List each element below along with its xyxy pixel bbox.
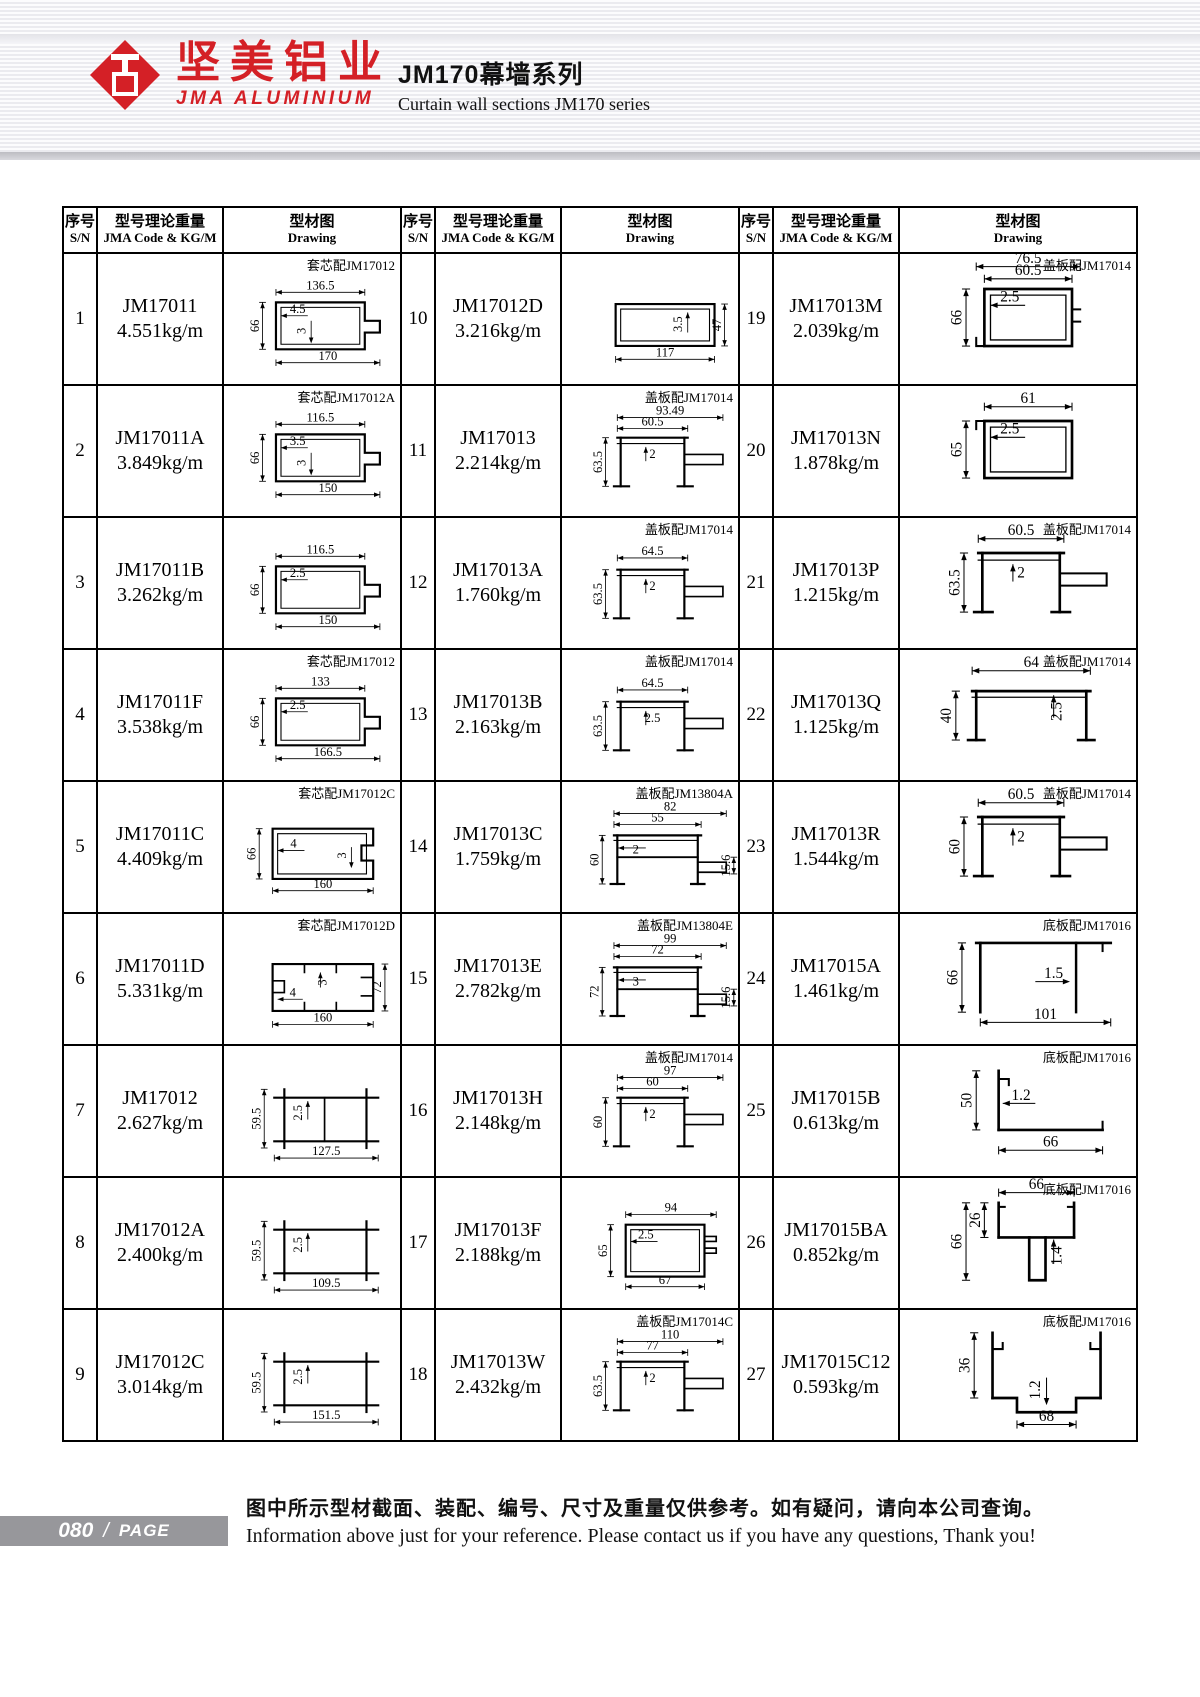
code-weight-cell: JM17013E2.782kg/m xyxy=(435,913,561,1045)
assembly-note: 盖板配JM17014 xyxy=(1043,783,1131,802)
profile-drawing-svg: 136.5664.53170 xyxy=(224,272,400,383)
serial-number: 15 xyxy=(401,913,435,1045)
svg-text:151.5: 151.5 xyxy=(312,1408,340,1422)
svg-text:61: 61 xyxy=(1021,390,1036,407)
series-title-cn: JM170幕墙系列 xyxy=(398,55,650,91)
svg-text:63.5: 63.5 xyxy=(591,583,605,605)
code-weight-cell: JM17013H2.148kg/m xyxy=(435,1045,561,1177)
serial-number: 9 xyxy=(63,1309,97,1441)
serial-number: 8 xyxy=(63,1177,97,1309)
svg-text:66: 66 xyxy=(948,1234,965,1250)
drawing-cell: 套芯配JM17012136.5664.53170 xyxy=(223,253,401,385)
svg-text:94: 94 xyxy=(665,1201,678,1215)
assembly-note: 底板配JM17016 xyxy=(1043,1179,1131,1198)
svg-text:99: 99 xyxy=(664,932,677,946)
drawing-cell: 底板配JM17016501.266 xyxy=(899,1045,1137,1177)
svg-text:60.5: 60.5 xyxy=(1008,786,1035,803)
assembly-note: 盖板配JM17014 xyxy=(645,519,733,538)
jma-logo-icon xyxy=(88,38,162,112)
col-header-drawing: 型材图Drawing xyxy=(223,207,401,253)
svg-text:65: 65 xyxy=(948,442,965,458)
svg-text:60: 60 xyxy=(946,839,963,855)
svg-text:66: 66 xyxy=(248,452,262,465)
code-weight-cell: JM17013B2.163kg/m xyxy=(435,649,561,781)
page-number-badge: 080 / PAGE xyxy=(0,1516,228,1546)
svg-text:3: 3 xyxy=(316,979,330,985)
svg-text:66: 66 xyxy=(248,716,262,729)
profile-drawing-svg: 64.5263.5 xyxy=(562,536,738,647)
drawing-cell: 116.5662.5150 xyxy=(223,517,401,649)
serial-number: 11 xyxy=(401,385,435,517)
page-footer: 080 / PAGE 图中所示型材截面、装配、编号、尺寸及重量仅供参考。如有疑问… xyxy=(0,1484,1200,1604)
profile-weight: 0.613kg/m xyxy=(774,1111,898,1136)
col-header-code: 型号理论重量JMA Code & KG/M xyxy=(435,207,561,253)
svg-text:2: 2 xyxy=(1017,564,1025,581)
profile-code: JM17015C12 xyxy=(774,1350,898,1375)
code-weight-cell: JM17011C4.409kg/m xyxy=(97,781,223,913)
svg-text:2: 2 xyxy=(1017,828,1025,845)
profile-code: JM17011B xyxy=(98,558,222,583)
serial-number: 7 xyxy=(63,1045,97,1177)
profile-code: JM17013E xyxy=(436,954,560,979)
profile-code: JM17013M xyxy=(774,294,898,319)
svg-text:136.5: 136.5 xyxy=(306,278,334,292)
svg-text:66: 66 xyxy=(248,320,262,333)
code-weight-cell: JM17011F3.538kg/m xyxy=(97,649,223,781)
svg-text:170: 170 xyxy=(319,349,338,363)
serial-number: 25 xyxy=(739,1045,773,1177)
code-weight-cell: JM170132.214kg/m xyxy=(435,385,561,517)
profile-code: JM17011A xyxy=(98,426,222,451)
drawing-cell: 59.52.5109.5 xyxy=(223,1177,401,1309)
assembly-note: 套芯配JM17012A xyxy=(297,387,395,406)
profile-weight: 1.461kg/m xyxy=(774,979,898,1004)
serial-number: 12 xyxy=(401,517,435,649)
code-weight-cell: JM17012C3.014kg/m xyxy=(97,1309,223,1441)
svg-text:77: 77 xyxy=(646,1339,659,1353)
svg-text:3: 3 xyxy=(295,460,309,466)
drawing-cell: 盖板配JM1701493.4960.5263.5 xyxy=(561,385,739,517)
profile-weight: 1.878kg/m xyxy=(774,451,898,476)
svg-text:2.5: 2.5 xyxy=(291,1105,305,1121)
svg-text:68: 68 xyxy=(1039,1408,1055,1425)
profile-drawing-svg: 93.4960.5263.5 xyxy=(562,404,738,515)
svg-text:2.5: 2.5 xyxy=(290,698,306,712)
header-divider xyxy=(0,152,1200,160)
profile-code: JM17013B xyxy=(436,690,560,715)
svg-text:3: 3 xyxy=(633,974,639,988)
code-weight-cell: JM17012D3.216kg/m xyxy=(435,253,561,385)
drawing-cell: 底板配JM17016361.268 xyxy=(899,1309,1137,1441)
svg-text:63.5: 63.5 xyxy=(591,451,605,473)
svg-text:64: 64 xyxy=(1024,654,1040,671)
serial-number: 17 xyxy=(401,1177,435,1309)
svg-text:116.5: 116.5 xyxy=(306,542,334,556)
assembly-note: 盖板配JM17014 xyxy=(645,1047,733,1066)
svg-text:160: 160 xyxy=(313,1010,332,1024)
svg-text:109.5: 109.5 xyxy=(312,1276,340,1290)
profile-drawing-svg: 3416072 xyxy=(224,932,400,1043)
code-weight-cell: JM17015C120.593kg/m xyxy=(773,1309,899,1441)
profile-code: JM17012A xyxy=(98,1218,222,1243)
drawing-cell: 612.565 xyxy=(899,385,1137,517)
profile-drawing-svg: 59.52.5109.5 xyxy=(224,1196,400,1307)
svg-text:66: 66 xyxy=(948,310,965,326)
profile-drawing-svg: 59.52.5127.5 xyxy=(224,1064,400,1175)
assembly-note: 底板配JM17016 xyxy=(1043,1311,1131,1330)
profile-weight: 3.849kg/m xyxy=(98,451,222,476)
assembly-note: 盖板配JM13804E xyxy=(637,915,733,934)
drawing-cell: 盖板配JM1701464.5263.5 xyxy=(561,517,739,649)
svg-text:97: 97 xyxy=(664,1064,677,1078)
profile-code: JM17011 xyxy=(98,294,222,319)
drawing-cell: 底板配JM17016661.5101 xyxy=(899,913,1137,1045)
assembly-note: 盖板配JM17014 xyxy=(1043,255,1131,274)
assembly-note: 底板配JM17016 xyxy=(1043,915,1131,934)
svg-text:2.5: 2.5 xyxy=(291,1237,305,1253)
drawing-cell: 底板配JM170166626661.4 xyxy=(899,1177,1137,1309)
svg-text:15.6: 15.6 xyxy=(719,987,733,1009)
svg-text:65: 65 xyxy=(596,1244,610,1257)
svg-text:59.5: 59.5 xyxy=(249,1240,263,1262)
profile-code: JM17011D xyxy=(98,954,222,979)
svg-text:26: 26 xyxy=(967,1212,984,1228)
profile-drawing-svg: 612.565 xyxy=(911,380,1125,515)
brand-block: 坚美铝业 JMA ALUMINIUM xyxy=(88,38,392,112)
svg-text:2.5: 2.5 xyxy=(1000,421,1019,438)
profile-drawing-svg: 94652.567 xyxy=(562,1196,738,1307)
svg-text:60.5: 60.5 xyxy=(1015,262,1042,279)
profile-code: JM17013R xyxy=(774,822,898,847)
profile-code: JM17013N xyxy=(774,426,898,451)
profile-drawing-svg: 64.52.563.5 xyxy=(562,668,738,779)
drawing-cell: 套芯配JM17012D3416072 xyxy=(223,913,401,1045)
svg-text:66: 66 xyxy=(248,584,262,597)
drawing-cell: 盖板配JM1701476.560.52.566 xyxy=(899,253,1137,385)
profile-catalog-table: 序号S/N 型号理论重量JMA Code & KG/M 型材图Drawing 序… xyxy=(62,206,1138,1442)
serial-number: 21 xyxy=(739,517,773,649)
footer-note-en: Information above just for your referenc… xyxy=(246,1525,1200,1548)
serial-number: 2 xyxy=(63,385,97,517)
svg-text:127.5: 127.5 xyxy=(312,1144,340,1158)
svg-text:4: 4 xyxy=(290,985,297,999)
svg-text:3.5: 3.5 xyxy=(671,316,685,332)
profile-code: JM17013H xyxy=(436,1086,560,1111)
svg-text:2: 2 xyxy=(649,1107,655,1121)
profile-weight: 2.163kg/m xyxy=(436,715,560,740)
drawing-cell: 盖板配JM17014C11077263.5 xyxy=(561,1309,739,1441)
svg-text:3: 3 xyxy=(335,852,349,858)
profile-drawing-svg: 116.5662.5150 xyxy=(224,536,400,647)
serial-number: 26 xyxy=(739,1177,773,1309)
svg-text:2: 2 xyxy=(649,447,655,461)
assembly-note: 盖板配JM17014 xyxy=(645,387,733,406)
svg-text:2.5: 2.5 xyxy=(645,711,661,725)
profile-drawing-svg: 6643160 xyxy=(224,800,400,911)
code-weight-cell: JM17013P1.215kg/m xyxy=(773,517,899,649)
profile-weight: 2.039kg/m xyxy=(774,319,898,344)
drawing-cell: 盖板配JM1701460.5260 xyxy=(899,781,1137,913)
svg-text:63.5: 63.5 xyxy=(946,569,963,596)
profile-code: JM17012 xyxy=(98,1086,222,1111)
svg-text:117: 117 xyxy=(656,345,674,359)
svg-text:72: 72 xyxy=(587,985,601,998)
drawing-cell: 3.547117 xyxy=(561,253,739,385)
svg-text:36: 36 xyxy=(957,1357,974,1373)
svg-text:63.5: 63.5 xyxy=(591,1375,605,1397)
assembly-note: 底板配JM17016 xyxy=(1043,1047,1131,1066)
svg-text:59.5: 59.5 xyxy=(249,1372,263,1394)
svg-text:133: 133 xyxy=(311,674,330,688)
drawing-cell: 套芯配JM17012A116.5663.53150 xyxy=(223,385,401,517)
assembly-note: 套芯配JM17012 xyxy=(307,255,395,274)
profile-weight: 3.014kg/m xyxy=(98,1375,222,1400)
svg-text:160: 160 xyxy=(313,877,332,891)
svg-text:4.5: 4.5 xyxy=(290,302,306,316)
code-weight-cell: JM17013Q1.125kg/m xyxy=(773,649,899,781)
profile-weight: 3.538kg/m xyxy=(98,715,222,740)
svg-text:1.2: 1.2 xyxy=(1012,1087,1031,1104)
drawing-cell: 盖板配JM1701460.5263.5 xyxy=(899,517,1137,649)
table-header: 序号S/N 型号理论重量JMA Code & KG/M 型材图Drawing 序… xyxy=(63,207,1137,253)
svg-text:50: 50 xyxy=(959,1092,976,1108)
svg-text:116.5: 116.5 xyxy=(306,410,334,424)
table-row: 5JM17011C4.409kg/m套芯配JM17012C664316014JM… xyxy=(63,781,1137,913)
assembly-note: 盖板配JM17014 xyxy=(1043,651,1131,670)
profile-code: JM17012C xyxy=(98,1350,222,1375)
table-body: 1JM170114.551kg/m套芯配JM17012136.5664.5317… xyxy=(63,253,1137,1441)
serial-number: 10 xyxy=(401,253,435,385)
assembly-note: 盖板配JM17014 xyxy=(645,651,733,670)
assembly-note: 套芯配JM17012 xyxy=(307,651,395,670)
code-weight-cell: JM170114.551kg/m xyxy=(97,253,223,385)
code-weight-cell: JM170122.627kg/m xyxy=(97,1045,223,1177)
profile-weight: 1.759kg/m xyxy=(436,847,560,872)
table-row: 6JM17011D5.331kg/m套芯配JM17012D341607215JM… xyxy=(63,913,1137,1045)
serial-number: 24 xyxy=(739,913,773,1045)
profile-weight: 2.432kg/m xyxy=(436,1375,560,1400)
serial-number: 1 xyxy=(63,253,97,385)
drawing-cell: 94652.567 xyxy=(561,1177,739,1309)
table-row: 7JM170122.627kg/m59.52.5127.516JM17013H2… xyxy=(63,1045,1137,1177)
svg-text:3: 3 xyxy=(295,328,309,334)
svg-text:55: 55 xyxy=(651,811,664,825)
code-weight-cell: JM17013F2.188kg/m xyxy=(435,1177,561,1309)
table-row: 9JM17012C3.014kg/m59.52.5151.518JM17013W… xyxy=(63,1309,1137,1441)
profile-weight: 4.551kg/m xyxy=(98,319,222,344)
svg-text:72: 72 xyxy=(651,943,664,957)
col-header-code: 型号理论重量JMA Code & KG/M xyxy=(773,207,899,253)
svg-text:60.5: 60.5 xyxy=(642,415,664,429)
table-row: 3JM17011B3.262kg/m116.5662.515012JM17013… xyxy=(63,517,1137,649)
page-title: JM170幕墙系列 Curtain wall sections JM170 se… xyxy=(398,55,650,115)
serial-number: 23 xyxy=(739,781,773,913)
code-weight-cell: JM17013R1.544kg/m xyxy=(773,781,899,913)
drawing-cell: 盖板配JM1701464.52.563.5 xyxy=(561,649,739,781)
col-header-sn: 序号S/N xyxy=(739,207,773,253)
code-weight-cell: JM17013C1.759kg/m xyxy=(435,781,561,913)
col-header-drawing: 型材图Drawing xyxy=(561,207,739,253)
brand-name-cn: 坚美铝业 xyxy=(176,40,392,86)
serial-number: 5 xyxy=(63,781,97,913)
profile-drawing-svg: 825526015.6 xyxy=(562,800,738,911)
code-weight-cell: JM17013A1.760kg/m xyxy=(435,517,561,649)
svg-text:2.5: 2.5 xyxy=(1048,702,1065,721)
profile-drawing-svg: 997237215.6 xyxy=(562,932,738,1043)
serial-number: 14 xyxy=(401,781,435,913)
serial-number: 3 xyxy=(63,517,97,649)
assembly-note: 盖板配JM17014 xyxy=(1043,519,1131,538)
svg-text:60: 60 xyxy=(646,1075,659,1089)
svg-text:166.5: 166.5 xyxy=(314,745,342,759)
serial-number: 19 xyxy=(739,253,773,385)
svg-text:64.5: 64.5 xyxy=(642,544,664,558)
serial-number: 27 xyxy=(739,1309,773,1441)
svg-text:1.2: 1.2 xyxy=(1027,1380,1044,1399)
svg-text:110: 110 xyxy=(661,1328,679,1342)
profile-weight: 2.188kg/m xyxy=(436,1243,560,1268)
profile-code: JM17015A xyxy=(774,954,898,979)
profile-code: JM17012D xyxy=(436,294,560,319)
serial-number: 18 xyxy=(401,1309,435,1441)
serial-number: 6 xyxy=(63,913,97,1045)
drawing-cell: 套芯配JM17012133662.5166.5 xyxy=(223,649,401,781)
table-row: 8JM17012A2.400kg/m59.52.5109.517JM17013F… xyxy=(63,1177,1137,1309)
profile-weight: 2.148kg/m xyxy=(436,1111,560,1136)
serial-number: 4 xyxy=(63,649,97,781)
profile-code: JM17015B xyxy=(774,1086,898,1111)
profile-weight: 0.852kg/m xyxy=(774,1243,898,1268)
drawing-cell: 59.52.5127.5 xyxy=(223,1045,401,1177)
code-weight-cell: JM17013W2.432kg/m xyxy=(435,1309,561,1441)
profile-drawing-svg: 9760260 xyxy=(562,1064,738,1175)
svg-text:60: 60 xyxy=(587,853,601,866)
code-weight-cell: JM17015A1.461kg/m xyxy=(773,913,899,1045)
profile-code: JM17013F xyxy=(436,1218,560,1243)
page-separator: / xyxy=(103,1520,109,1543)
profile-code: JM17011F xyxy=(98,690,222,715)
drawing-cell: 59.52.5151.5 xyxy=(223,1309,401,1441)
profile-weight: 3.262kg/m xyxy=(98,583,222,608)
drawing-cell: 盖板配JM13804A825526015.6 xyxy=(561,781,739,913)
svg-text:2: 2 xyxy=(649,579,655,593)
code-weight-cell: JM17013N1.878kg/m xyxy=(773,385,899,517)
svg-text:47: 47 xyxy=(710,319,724,332)
svg-text:150: 150 xyxy=(319,613,338,627)
page-number: 080 xyxy=(58,1519,93,1543)
code-weight-cell: JM17011B3.262kg/m xyxy=(97,517,223,649)
profile-drawing-svg: 133662.5166.5 xyxy=(224,668,400,779)
serial-number: 20 xyxy=(739,385,773,517)
svg-text:1.5: 1.5 xyxy=(1044,965,1063,982)
svg-text:59.5: 59.5 xyxy=(249,1108,263,1130)
profile-weight: 5.331kg/m xyxy=(98,979,222,1004)
assembly-note: 套芯配JM17012D xyxy=(297,915,395,934)
profile-code: JM17013 xyxy=(436,426,560,451)
svg-text:3.5: 3.5 xyxy=(290,434,306,448)
code-weight-cell: JM17011A3.849kg/m xyxy=(97,385,223,517)
brand-name-en: JMA ALUMINIUM xyxy=(176,88,392,110)
svg-text:2.5: 2.5 xyxy=(1000,289,1019,306)
serial-number: 22 xyxy=(739,649,773,781)
profile-code: JM17013A xyxy=(436,558,560,583)
profile-code: JM17015BA xyxy=(774,1218,898,1243)
col-header-sn: 序号S/N xyxy=(401,207,435,253)
svg-text:2.5: 2.5 xyxy=(290,566,306,580)
drawing-cell: 盖板配JM13804E997237215.6 xyxy=(561,913,739,1045)
svg-text:82: 82 xyxy=(664,800,677,814)
profile-weight: 1.215kg/m xyxy=(774,583,898,608)
profile-code: JM17013C xyxy=(436,822,560,847)
svg-text:2.5: 2.5 xyxy=(638,1228,654,1242)
col-header-sn: 序号S/N xyxy=(63,207,97,253)
profile-weight: 0.593kg/m xyxy=(774,1375,898,1400)
profile-drawing-svg: 11077263.5 xyxy=(562,1328,738,1439)
serial-number: 13 xyxy=(401,649,435,781)
svg-text:60: 60 xyxy=(591,1116,605,1129)
svg-text:72: 72 xyxy=(370,981,384,994)
profile-weight: 2.214kg/m xyxy=(436,451,560,476)
series-title-en: Curtain wall sections JM170 series xyxy=(398,94,650,115)
profile-weight: 2.627kg/m xyxy=(98,1111,222,1136)
svg-text:63.5: 63.5 xyxy=(591,715,605,737)
svg-text:1.4: 1.4 xyxy=(1048,1246,1065,1265)
profile-weight: 4.409kg/m xyxy=(98,847,222,872)
col-header-drawing: 型材图Drawing xyxy=(899,207,1137,253)
code-weight-cell: JM17015BA0.852kg/m xyxy=(773,1177,899,1309)
profile-weight: 2.782kg/m xyxy=(436,979,560,1004)
profile-code: JM17013P xyxy=(774,558,898,583)
svg-text:40: 40 xyxy=(938,708,955,724)
svg-text:66: 66 xyxy=(944,970,961,986)
svg-text:60.5: 60.5 xyxy=(1008,522,1035,539)
profile-weight: 1.544kg/m xyxy=(774,847,898,872)
svg-text:4: 4 xyxy=(290,837,297,851)
svg-text:67: 67 xyxy=(659,1273,672,1287)
svg-text:2: 2 xyxy=(633,842,639,856)
svg-text:101: 101 xyxy=(1034,1006,1057,1023)
serial-number: 16 xyxy=(401,1045,435,1177)
code-weight-cell: JM17013M2.039kg/m xyxy=(773,253,899,385)
table-row: 2JM17011A3.849kg/m套芯配JM17012A116.5663.53… xyxy=(63,385,1137,517)
svg-text:2: 2 xyxy=(649,1371,655,1385)
top-brand-band: 坚美铝业 JMA ALUMINIUM JM170幕墙系列 Curtain wal… xyxy=(0,0,1200,152)
profile-weight: 2.400kg/m xyxy=(98,1243,222,1268)
table-row: 1JM170114.551kg/m套芯配JM17012136.5664.5317… xyxy=(63,253,1137,385)
drawing-cell: 盖板配JM170149760260 xyxy=(561,1045,739,1177)
profile-drawing-svg: 59.52.5151.5 xyxy=(224,1328,400,1439)
svg-text:15.6: 15.6 xyxy=(719,855,733,877)
profile-weight: 1.125kg/m xyxy=(774,715,898,740)
profile-weight: 3.216kg/m xyxy=(436,319,560,344)
col-header-code: 型号理论重量JMA Code & KG/M xyxy=(97,207,223,253)
svg-text:64.5: 64.5 xyxy=(642,676,664,690)
drawing-cell: 盖板配JM17014642.540 xyxy=(899,649,1137,781)
page-label: PAGE xyxy=(119,1521,170,1541)
profile-drawing-svg: 3.547117 xyxy=(562,272,738,383)
profile-code: JM17013Q xyxy=(774,690,898,715)
svg-text:66: 66 xyxy=(244,848,258,861)
code-weight-cell: JM17011D5.331kg/m xyxy=(97,913,223,1045)
code-weight-cell: JM17012A2.400kg/m xyxy=(97,1177,223,1309)
table-row: 4JM17011F3.538kg/m套芯配JM17012133662.5166.… xyxy=(63,649,1137,781)
svg-text:150: 150 xyxy=(319,481,338,495)
code-weight-cell: JM17015B0.613kg/m xyxy=(773,1045,899,1177)
svg-text:2.5: 2.5 xyxy=(291,1369,305,1385)
drawing-cell: 套芯配JM17012C6643160 xyxy=(223,781,401,913)
profile-weight: 1.760kg/m xyxy=(436,583,560,608)
profile-drawing-svg: 116.5663.53150 xyxy=(224,404,400,515)
